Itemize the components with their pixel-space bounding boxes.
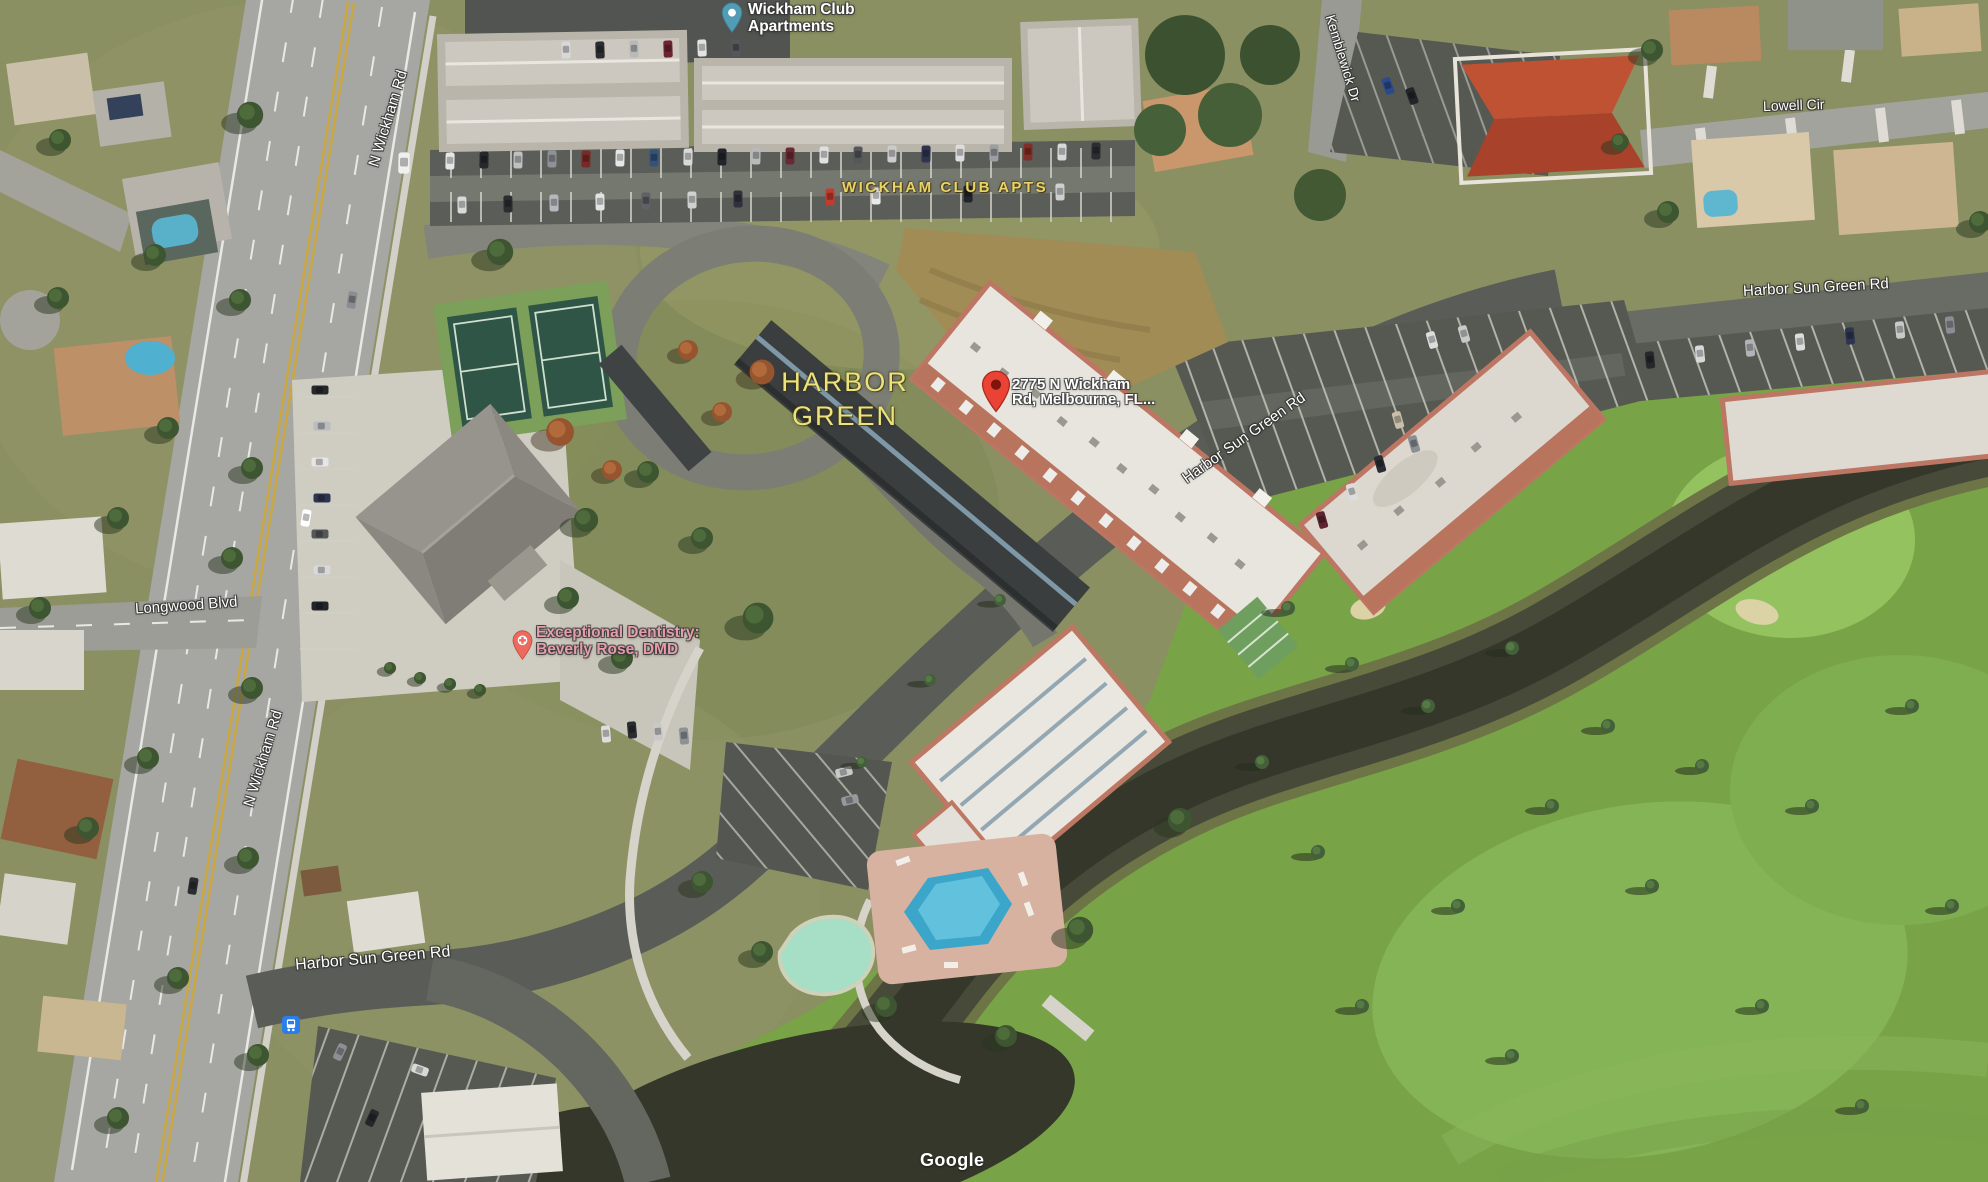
tennis-courts: [433, 280, 627, 443]
google-maps-satellite-view[interactable]: Wickham Club Apartments WICKHAM CLUB APT…: [0, 0, 1988, 1182]
address-line2: Rd, Melbourne, FL...: [1012, 392, 1155, 407]
satellite-imagery: [0, 0, 1988, 1182]
google-watermark[interactable]: Google: [920, 1150, 984, 1171]
wickham-club-line2: Apartments: [748, 18, 855, 35]
bus-stop-icon[interactable]: [282, 1016, 300, 1034]
harbor-green-line1: HARBOR: [770, 366, 920, 400]
wickham-club-line1: Wickham Club: [748, 1, 855, 18]
dentist-pin-icon[interactable]: [512, 630, 533, 666]
wickham-club-apartments-label[interactable]: Wickham Club Apartments: [748, 1, 855, 35]
lodging-pin-icon[interactable]: [721, 2, 743, 39]
dentistry-line1: Exceptional Dentistry:: [536, 624, 700, 641]
harbor-green-area-label: HARBOR GREEN: [770, 366, 920, 434]
dentistry-label[interactable]: Exceptional Dentistry: Beverly Rose, DMD: [536, 624, 700, 658]
address-line1: 2775 N Wickham: [1012, 377, 1155, 392]
road-label-lowell-cir: Lowell Cir: [1763, 97, 1825, 115]
harbor-green-line2: GREEN: [770, 400, 920, 434]
destination-address-label[interactable]: 2775 N Wickham Rd, Melbourne, FL...: [1012, 377, 1155, 407]
wickham-club-apts-area-label: WICKHAM CLUB APTS: [842, 180, 1048, 197]
dentistry-line2: Beverly Rose, DMD: [536, 641, 700, 658]
destination-pin-icon[interactable]: [981, 370, 1011, 419]
